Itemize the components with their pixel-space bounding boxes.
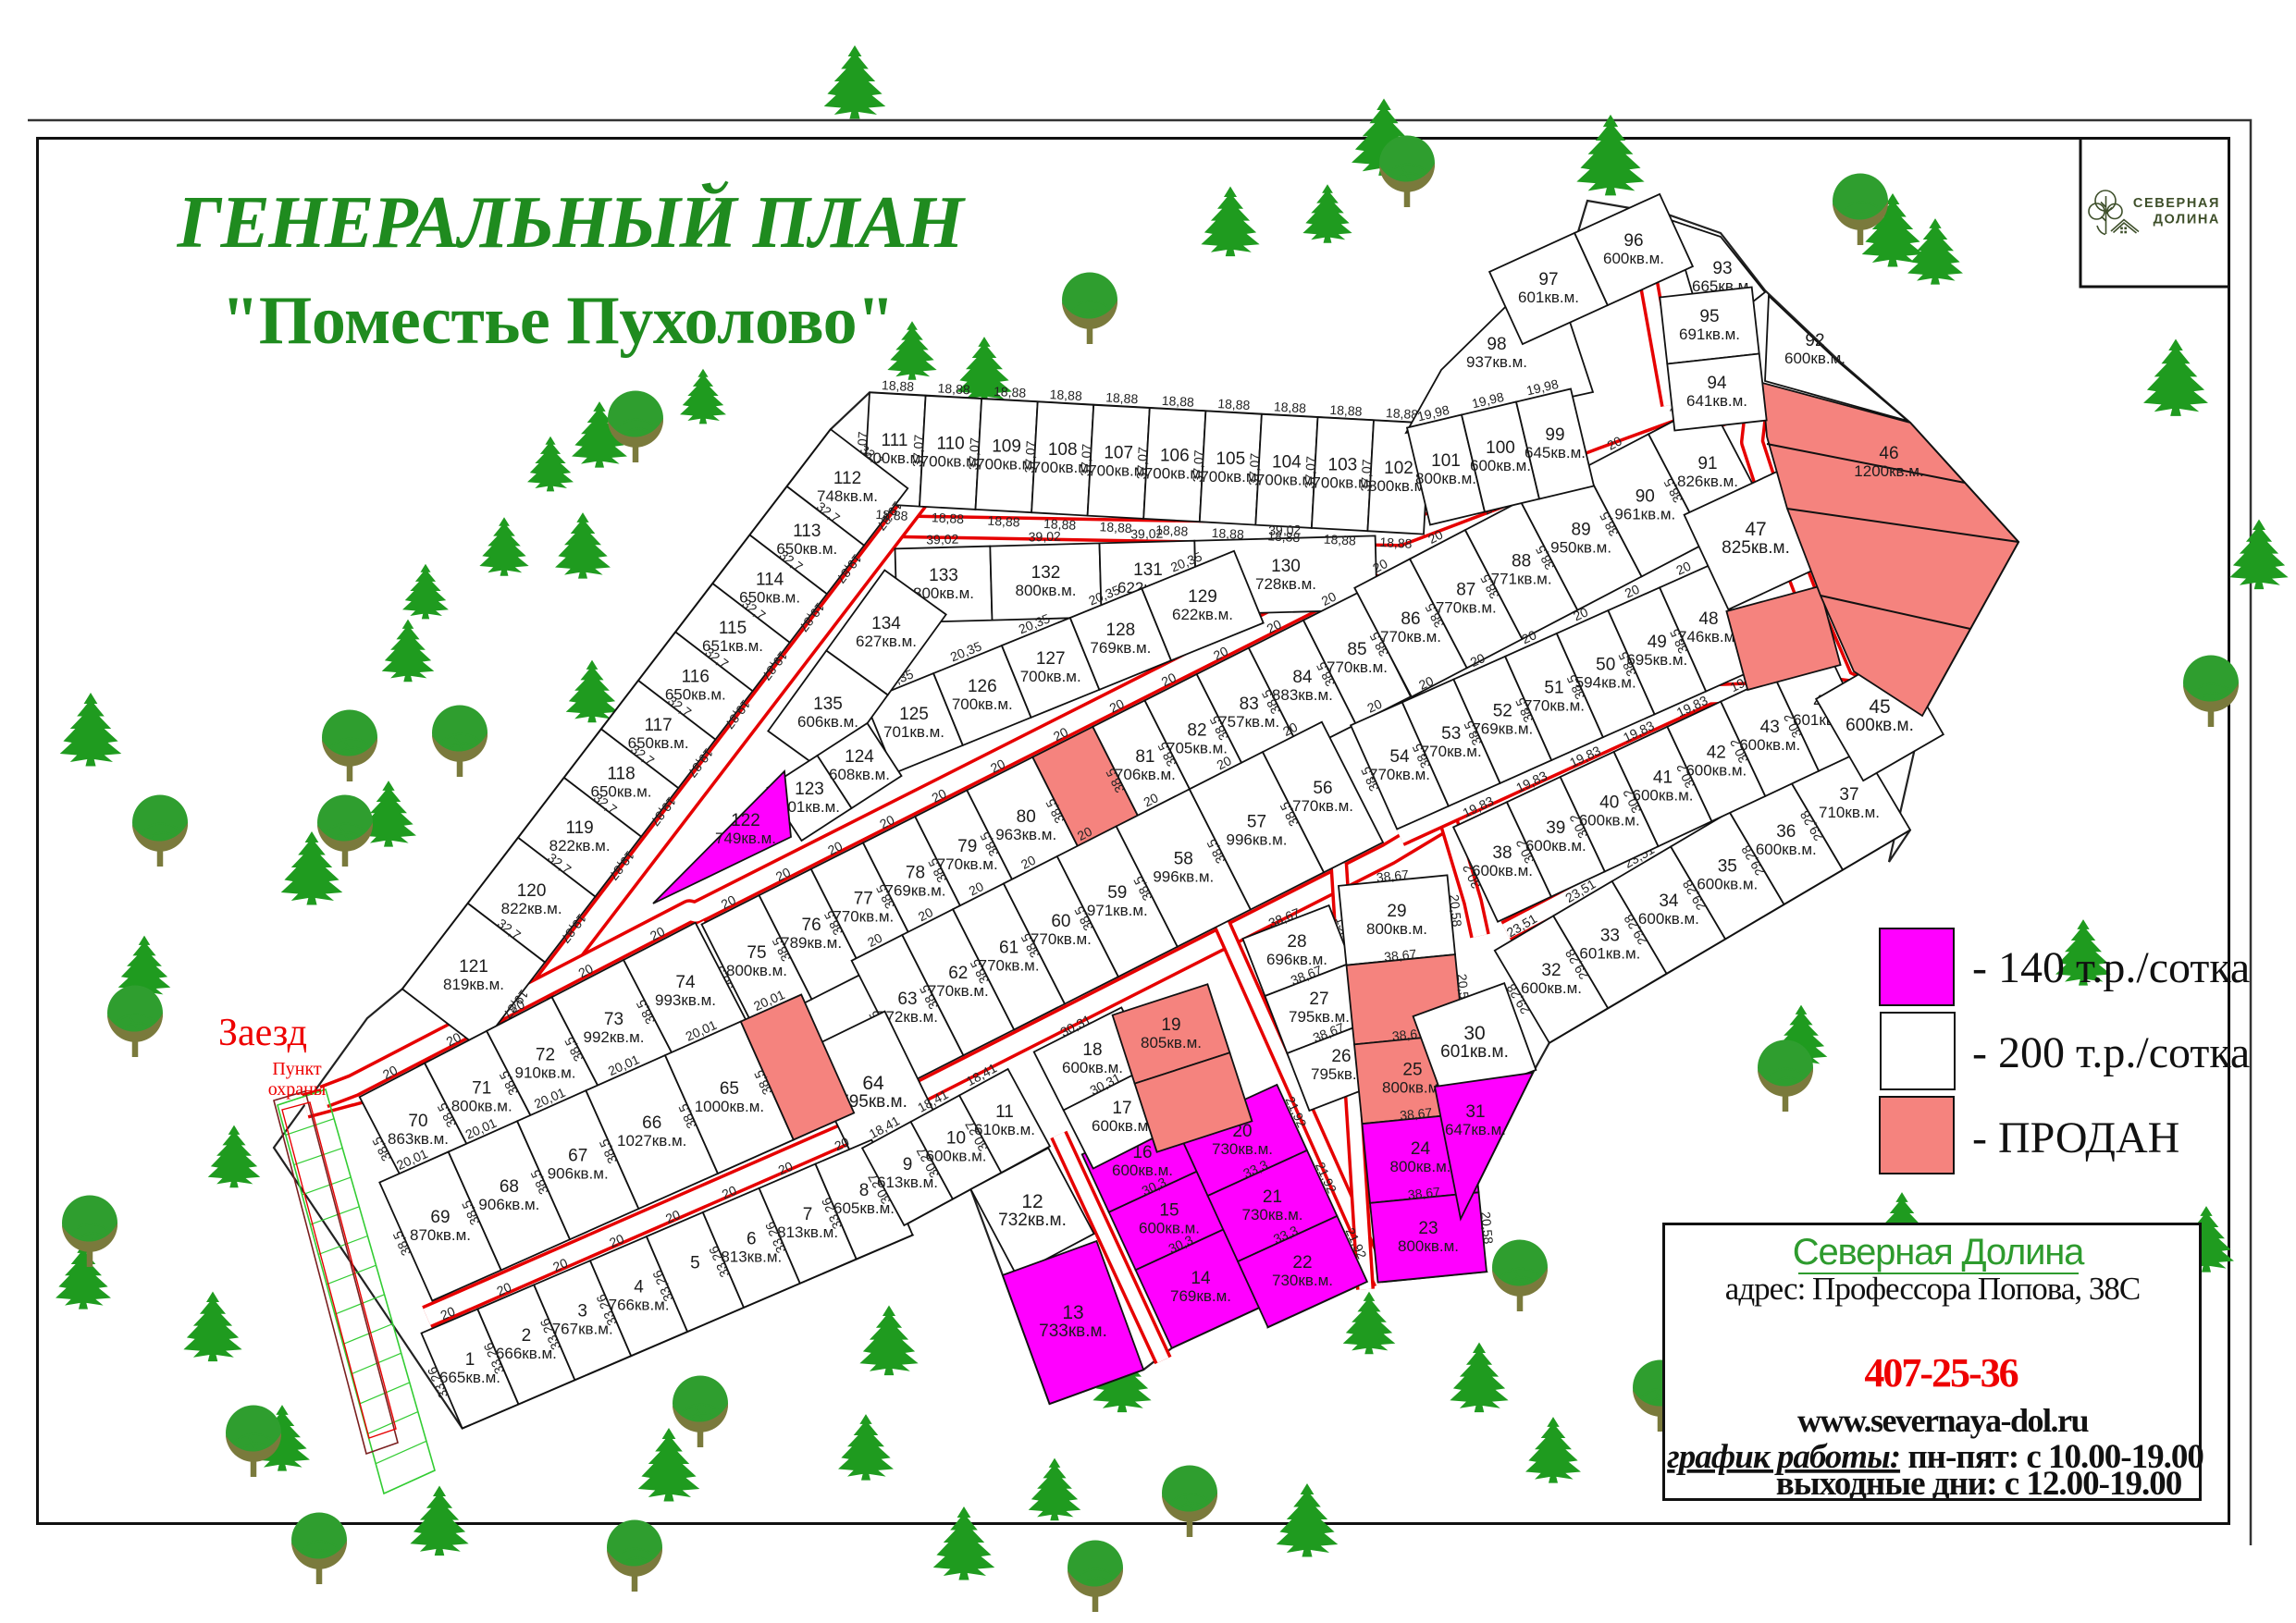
svg-text:18,88: 18,88 [1274, 399, 1307, 415]
svg-text:701кв.м.: 701кв.м. [883, 723, 944, 741]
svg-text:69: 69 [430, 1208, 450, 1227]
svg-text:622кв.м.: 622кв.м. [1172, 606, 1233, 623]
svg-text:963кв.м.: 963кв.м. [995, 826, 1056, 843]
svg-text:822кв.м.: 822кв.м. [549, 837, 611, 855]
svg-text:13: 13 [1062, 1302, 1083, 1323]
svg-text:- 140 т.р./сотка: - 140 т.р./сотка [1972, 943, 2250, 992]
svg-text:870кв.м.: 870кв.м. [410, 1226, 471, 1244]
svg-text:84: 84 [1292, 668, 1313, 687]
svg-text:39: 39 [1546, 818, 1565, 838]
svg-text:95: 95 [1699, 307, 1719, 326]
svg-text:87: 87 [1456, 581, 1475, 600]
svg-text:37,07: 37,07 [1134, 447, 1151, 480]
svg-text:128: 128 [1106, 621, 1136, 640]
svg-text:5: 5 [690, 1253, 700, 1273]
svg-text:21: 21 [1263, 1187, 1282, 1207]
svg-text:107: 107 [1104, 443, 1133, 462]
svg-text:29: 29 [1387, 902, 1406, 921]
svg-text:50: 50 [1596, 656, 1615, 675]
svg-text:104: 104 [1272, 452, 1302, 472]
svg-text:950кв.м.: 950кв.м. [1550, 539, 1611, 557]
svg-text:18,88: 18,88 [1099, 519, 1132, 535]
svg-text:59: 59 [1107, 883, 1127, 903]
svg-text:119: 119 [565, 818, 593, 838]
svg-text:770кв.м.: 770кв.м. [1327, 658, 1388, 676]
svg-text:100: 100 [1486, 438, 1515, 458]
svg-text:17: 17 [1112, 1099, 1131, 1118]
svg-text:18,88: 18,88 [1161, 393, 1194, 410]
svg-text:68: 68 [500, 1177, 519, 1197]
svg-text:23: 23 [1418, 1219, 1438, 1238]
svg-text:82: 82 [1187, 720, 1206, 740]
svg-text:733кв.м.: 733кв.м. [1039, 1322, 1107, 1341]
svg-text:1200кв.м.: 1200кв.м. [1854, 462, 1923, 480]
svg-text:39,02: 39,02 [926, 532, 959, 547]
svg-text:14: 14 [1191, 1269, 1211, 1288]
svg-text:18,88: 18,88 [987, 513, 1020, 530]
svg-text:728кв.м.: 728кв.м. [1255, 575, 1316, 593]
svg-text:18,88: 18,88 [1329, 402, 1363, 419]
svg-text:600кв.м.: 600кв.м. [1139, 1220, 1200, 1237]
svg-text:600кв.м.: 600кв.м. [1784, 350, 1845, 367]
svg-text:131: 131 [1133, 560, 1163, 580]
svg-text:105: 105 [1216, 449, 1245, 469]
svg-text:37,07: 37,07 [966, 437, 982, 471]
svg-text:66: 66 [642, 1113, 661, 1133]
svg-text:75: 75 [747, 943, 766, 963]
svg-text:9: 9 [903, 1155, 913, 1174]
svg-text:ГЕНЕРАЛЬНЫЙ ПЛАН: ГЕНЕРАЛЬНЫЙ ПЛАН [177, 180, 967, 264]
svg-text:47: 47 [1745, 519, 1766, 540]
svg-text:99: 99 [1545, 425, 1564, 445]
svg-text:600кв.м.: 600кв.м. [1470, 457, 1531, 474]
svg-text:40: 40 [1599, 793, 1619, 813]
svg-text:15: 15 [1159, 1201, 1179, 1221]
svg-text:70: 70 [408, 1112, 427, 1131]
svg-text:116: 116 [682, 668, 710, 687]
svg-text:134: 134 [871, 614, 901, 633]
svg-text:600кв.м.: 600кв.м. [1697, 876, 1758, 893]
svg-text:22: 22 [1292, 1253, 1312, 1273]
svg-text:Заезд: Заезд [218, 1012, 307, 1054]
svg-text:108: 108 [1048, 440, 1078, 460]
svg-text:37: 37 [1839, 785, 1858, 805]
svg-text:18,88: 18,88 [932, 510, 965, 526]
svg-text:36: 36 [1776, 822, 1796, 842]
svg-text:106: 106 [1160, 447, 1190, 466]
svg-text:12: 12 [1021, 1191, 1043, 1212]
svg-text:18,88: 18,88 [1155, 523, 1189, 539]
svg-text:18,88: 18,88 [1323, 532, 1356, 548]
svg-text:769кв.м.: 769кв.м. [1090, 639, 1151, 657]
svg-text:600кв.м.: 600кв.м. [1638, 910, 1699, 928]
svg-text:2: 2 [522, 1326, 532, 1346]
svg-text:906кв.м.: 906кв.м. [548, 1165, 609, 1183]
svg-text:37,07: 37,07 [909, 434, 926, 467]
svg-text:Северная Долина: Северная Долина [1793, 1232, 2085, 1273]
svg-text:74: 74 [675, 973, 696, 992]
svg-text:81: 81 [1135, 747, 1154, 767]
svg-text:СЕВЕРНАЯ: СЕВЕРНАЯ [2133, 196, 2220, 211]
svg-text:71: 71 [472, 1078, 491, 1098]
svg-text:31: 31 [1465, 1102, 1485, 1122]
svg-text:992кв.м.: 992кв.м. [584, 1028, 645, 1046]
svg-text:121: 121 [459, 957, 488, 977]
svg-text:800кв.м.: 800кв.м. [1382, 1079, 1443, 1097]
svg-text:601кв.м.: 601кв.м. [1440, 1042, 1509, 1062]
svg-text:627кв.м.: 627кв.м. [856, 633, 917, 650]
svg-text:80: 80 [1017, 807, 1036, 827]
svg-text:117: 117 [644, 716, 672, 735]
svg-text:34: 34 [1659, 891, 1679, 911]
svg-text:64: 64 [862, 1073, 884, 1094]
svg-text:ДОЛИНА: ДОЛИНА [2154, 213, 2220, 227]
svg-text:91: 91 [1697, 454, 1717, 473]
svg-text:88: 88 [1512, 551, 1531, 571]
svg-text:961кв.м.: 961кв.м. [1614, 505, 1675, 523]
svg-text:124: 124 [845, 747, 874, 767]
svg-text:118: 118 [607, 765, 635, 784]
svg-text:адрес: Профессора Попова, 38С: адрес: Профессора Попова, 38С [1725, 1271, 2140, 1307]
svg-text:32: 32 [1541, 961, 1561, 980]
svg-text:819кв.м.: 819кв.м. [443, 976, 504, 993]
svg-text:135: 135 [813, 695, 843, 714]
svg-text:600кв.м.: 600кв.м. [1112, 1162, 1173, 1179]
svg-text:103: 103 [1328, 456, 1358, 475]
svg-text:60: 60 [1051, 912, 1070, 931]
svg-text:113: 113 [793, 522, 821, 541]
svg-text:641кв.м.: 641кв.м. [1686, 392, 1747, 410]
svg-text:79: 79 [957, 837, 977, 856]
svg-text:65: 65 [720, 1079, 739, 1099]
svg-text:691кв.м.: 691кв.м. [1679, 326, 1740, 343]
svg-text:18,88: 18,88 [1267, 528, 1301, 545]
svg-text:45: 45 [1869, 696, 1890, 718]
svg-text:122: 122 [731, 811, 760, 830]
svg-text:10: 10 [946, 1129, 966, 1149]
svg-text:800кв.м.: 800кв.м. [726, 962, 787, 979]
svg-text:57: 57 [1247, 812, 1266, 831]
svg-text:72: 72 [536, 1046, 555, 1065]
svg-text:749кв.м.: 749кв.м. [715, 830, 776, 847]
svg-text:54: 54 [1389, 747, 1410, 767]
svg-text:охраны: охраны [268, 1079, 327, 1100]
svg-text:92: 92 [1805, 331, 1824, 350]
svg-text:125: 125 [899, 705, 929, 724]
svg-text:645кв.м.: 645кв.м. [1524, 444, 1586, 461]
svg-text:769кв.м.: 769кв.м. [1170, 1287, 1231, 1305]
svg-text:123: 123 [795, 780, 824, 799]
svg-text:115: 115 [719, 619, 747, 638]
svg-text:58: 58 [1174, 850, 1193, 869]
svg-text:601кв.м.: 601кв.м. [1518, 289, 1579, 306]
svg-text:710кв.м.: 710кв.м. [1819, 804, 1880, 821]
svg-text:800кв.м.: 800кв.м. [451, 1097, 512, 1114]
svg-text:18,88: 18,88 [1043, 516, 1077, 533]
svg-text:101: 101 [1431, 451, 1461, 471]
svg-text:7: 7 [803, 1205, 813, 1224]
svg-text:937кв.м.: 937кв.м. [1466, 353, 1527, 371]
svg-text:600кв.м.: 600кв.м. [1603, 250, 1664, 267]
svg-text:24: 24 [1411, 1139, 1431, 1159]
svg-text:37,07: 37,07 [1302, 456, 1318, 489]
svg-text:37,07: 37,07 [1021, 440, 1038, 473]
svg-text:1: 1 [465, 1350, 475, 1370]
svg-text:770кв.м.: 770кв.м. [1292, 797, 1353, 815]
svg-text:126: 126 [968, 677, 997, 696]
svg-text:3: 3 [577, 1302, 587, 1322]
svg-text:85: 85 [1347, 640, 1366, 659]
svg-text:56: 56 [1313, 779, 1332, 798]
svg-text:110: 110 [936, 434, 964, 453]
svg-text:26: 26 [1331, 1047, 1351, 1066]
svg-text:- 200 т.р./сотка: - 200 т.р./сотка [1972, 1028, 2250, 1077]
svg-text:608кв.м.: 608кв.м. [829, 766, 890, 783]
svg-text:83: 83 [1240, 695, 1259, 714]
svg-text:18,88: 18,88 [937, 380, 970, 397]
svg-text:18,88: 18,88 [882, 377, 915, 394]
svg-text:www.severnaya-dol.ru: www.severnaya-dol.ru [1797, 1402, 2089, 1439]
svg-text:800кв.м.: 800кв.м. [1398, 1237, 1459, 1255]
svg-text:42: 42 [1707, 743, 1726, 762]
svg-text:996кв.м.: 996кв.м. [1227, 830, 1288, 848]
svg-text:805кв.м.: 805кв.м. [1141, 1034, 1202, 1051]
svg-text:33: 33 [1600, 927, 1620, 946]
svg-text:27: 27 [1309, 990, 1328, 1009]
svg-text:114: 114 [756, 571, 784, 590]
svg-text:41: 41 [1653, 768, 1673, 788]
svg-text:61: 61 [999, 938, 1018, 957]
svg-text:700кв.м.: 700кв.м. [1020, 668, 1081, 685]
svg-text:1000кв.м.: 1000кв.м. [695, 1098, 764, 1115]
svg-text:732кв.м.: 732кв.м. [998, 1211, 1067, 1230]
svg-text:730кв.м.: 730кв.м. [1242, 1206, 1303, 1223]
svg-text:73: 73 [604, 1010, 623, 1029]
svg-text:94: 94 [1707, 374, 1727, 393]
svg-text:407-25-36: 407-25-36 [1864, 1350, 2018, 1396]
svg-text:800кв.м.: 800кв.м. [1366, 920, 1427, 938]
svg-text:800кв.м.: 800кв.м. [1415, 470, 1476, 487]
svg-text:97: 97 [1538, 270, 1558, 289]
svg-text:822кв.м.: 822кв.м. [501, 900, 562, 917]
svg-text:93: 93 [1712, 259, 1732, 278]
svg-text:78: 78 [906, 863, 925, 882]
svg-text:910кв.м.: 910кв.м. [515, 1064, 576, 1082]
svg-text:4: 4 [634, 1278, 644, 1297]
svg-text:37,07: 37,07 [1246, 452, 1263, 486]
svg-text:выходные дни: с 12.00-19.00: выходные дни: с 12.00-19.00 [1776, 1465, 2182, 1503]
svg-text:49: 49 [1648, 633, 1667, 652]
svg-text:132: 132 [1031, 563, 1061, 583]
svg-text:86: 86 [1401, 609, 1420, 629]
svg-text:770кв.м.: 770кв.м. [1436, 599, 1497, 617]
svg-text:111: 111 [882, 431, 908, 450]
svg-text:51: 51 [1544, 679, 1563, 698]
svg-text:127: 127 [1036, 649, 1066, 669]
svg-text:129: 129 [1188, 587, 1217, 607]
svg-text:52: 52 [1493, 701, 1512, 720]
svg-text:109: 109 [992, 437, 1021, 457]
svg-text:76: 76 [802, 916, 821, 935]
svg-text:35: 35 [1718, 857, 1737, 877]
svg-text:112: 112 [833, 469, 861, 488]
svg-text:46: 46 [1879, 444, 1898, 463]
svg-text:62: 62 [948, 964, 968, 983]
svg-text:18,88: 18,88 [1379, 535, 1413, 551]
svg-text:25: 25 [1402, 1061, 1422, 1080]
svg-text:6: 6 [747, 1229, 757, 1248]
svg-text:647кв.м.: 647кв.м. [1445, 1121, 1506, 1138]
svg-text:43: 43 [1760, 718, 1780, 737]
svg-text:800кв.м.: 800кв.м. [1016, 582, 1077, 599]
svg-text:11: 11 [995, 1102, 1014, 1122]
svg-text:38: 38 [1492, 843, 1512, 863]
svg-text:98: 98 [1487, 335, 1506, 354]
svg-text:996кв.м.: 996кв.м. [1153, 868, 1214, 886]
svg-text:Пункт: Пункт [272, 1059, 322, 1079]
svg-text:18,88: 18,88 [994, 384, 1027, 400]
svg-text:120: 120 [517, 881, 547, 901]
svg-text:102: 102 [1384, 459, 1413, 478]
svg-text:18,88: 18,88 [875, 507, 908, 523]
svg-text:771кв.м.: 771кв.м. [1491, 570, 1552, 587]
svg-text:601кв.м.: 601кв.м. [1579, 945, 1640, 963]
svg-text:18,88: 18,88 [1217, 396, 1251, 412]
svg-text:600кв.м.: 600кв.м. [1756, 841, 1817, 858]
svg-text:19: 19 [1161, 1015, 1180, 1035]
svg-text:971кв.м.: 971кв.м. [1087, 902, 1148, 919]
svg-text:"Поместье Пухолово": "Поместье Пухолово" [221, 283, 895, 359]
svg-text:53: 53 [1441, 724, 1461, 744]
svg-text:800кв.м.: 800кв.м. [1390, 1158, 1451, 1175]
svg-text:133: 133 [929, 566, 958, 585]
svg-text:606кв.м.: 606кв.м. [797, 713, 858, 731]
svg-text:37,07: 37,07 [1358, 459, 1375, 492]
svg-text:37,07: 37,07 [1078, 443, 1094, 476]
svg-text:90: 90 [1636, 486, 1655, 506]
svg-text:28: 28 [1287, 932, 1306, 952]
svg-text:1027кв.м.: 1027кв.м. [617, 1132, 686, 1150]
svg-text:37,07: 37,07 [1190, 449, 1206, 483]
svg-text:130: 130 [1271, 557, 1301, 576]
svg-text:18,88: 18,88 [1211, 525, 1244, 542]
svg-text:770кв.м.: 770кв.м. [1380, 628, 1441, 646]
svg-text:600кв.м.: 600кв.м. [1521, 979, 1582, 997]
svg-text:730кв.м.: 730кв.м. [1272, 1272, 1333, 1289]
svg-text:18,88: 18,88 [1105, 389, 1139, 406]
svg-text:600кв.м.: 600кв.м. [1092, 1117, 1153, 1135]
svg-text:730кв.м.: 730кв.м. [1212, 1140, 1273, 1158]
svg-text:- ПРОДАН: - ПРОДАН [1972, 1113, 2179, 1162]
svg-text:18,88: 18,88 [1049, 387, 1082, 403]
svg-text:993кв.м.: 993кв.м. [655, 991, 716, 1009]
svg-text:600кв.м.: 600кв.м. [1845, 716, 1914, 735]
svg-text:30: 30 [1463, 1023, 1485, 1044]
svg-text:67: 67 [568, 1147, 587, 1166]
svg-text:18: 18 [1082, 1040, 1102, 1060]
svg-text:863кв.м.: 863кв.м. [388, 1130, 449, 1148]
svg-text:77: 77 [854, 890, 873, 909]
svg-text:825кв.м.: 825кв.м. [1722, 538, 1790, 558]
svg-text:906кв.м.: 906кв.м. [478, 1196, 539, 1213]
svg-text:826кв.м.: 826кв.м. [1677, 473, 1738, 490]
svg-text:63: 63 [897, 990, 917, 1009]
svg-text:89: 89 [1572, 521, 1591, 540]
svg-text:700кв.м.: 700кв.м. [952, 695, 1013, 713]
svg-text:96: 96 [1623, 231, 1643, 251]
svg-text:48: 48 [1698, 609, 1718, 629]
